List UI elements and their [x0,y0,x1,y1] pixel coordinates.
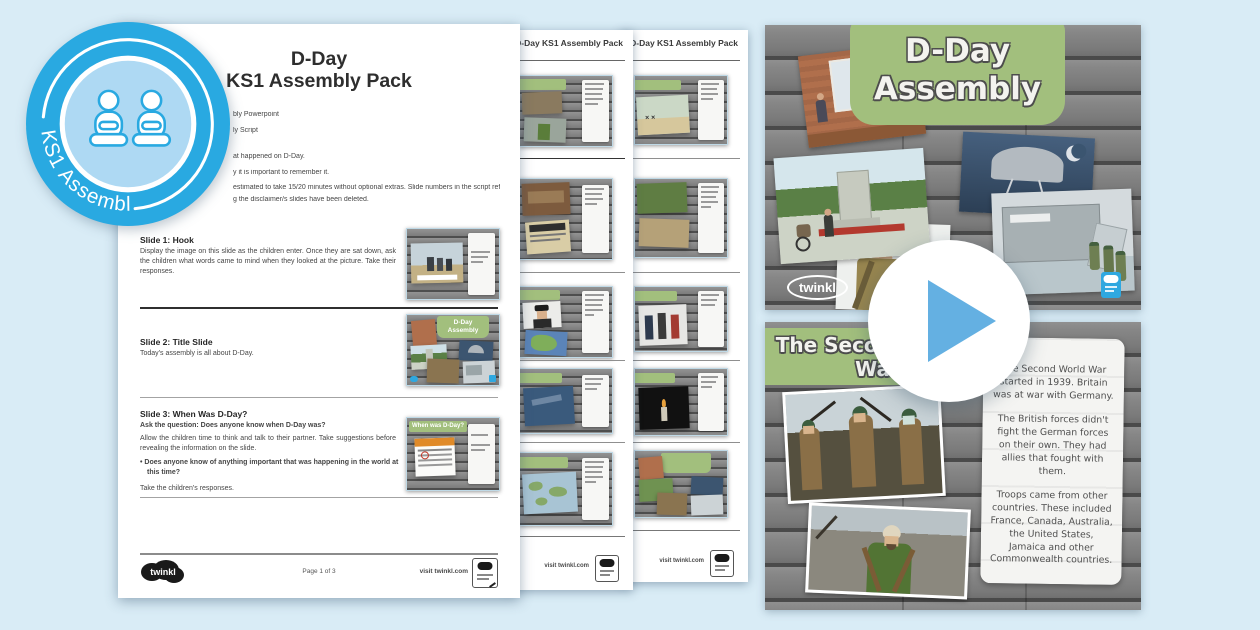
twinkl-mini-logo [410,376,418,382]
coat [533,319,551,329]
paragraph-3: Troops came from other countries. These … [990,490,1114,568]
divider [505,360,625,361]
mini-title-line-2: Assembly [437,327,489,335]
x-marks: × × [645,114,655,122]
slide-3-thumbnail: When was D-Day? [406,417,500,491]
parachute-canopy [991,145,1065,183]
section-body: Allow the children time to think and tal… [140,434,396,454]
slide-title-bar [634,80,681,90]
slide-thumbnail [634,368,728,436]
face [903,415,915,425]
preview-stage: D-Day KS1 Assembly Pack × × [0,0,1260,630]
building-photo [638,456,664,480]
twinkl-cloud-icon [1104,275,1119,283]
moon-shadow [1071,143,1087,159]
twinkl-cloud-icon [715,554,730,562]
soldiers-photo [657,492,688,515]
parachute [468,345,484,354]
soldier [899,418,924,485]
figure [437,258,443,271]
badge-line [477,578,489,580]
beach-photo [639,218,690,248]
slide-title-line-2: Assembly [850,69,1065,109]
soldier [1103,245,1114,273]
soldier [849,415,877,488]
badge-line [715,565,729,567]
slide-thumbnail [519,368,613,434]
parachute-photo [458,340,493,362]
header-rule [620,60,740,61]
script-card [582,185,609,253]
sikh-soldier-photo [805,503,971,600]
landing-craft-photo [691,494,724,515]
twinkl-logo-white: twinkl [787,275,848,300]
section-body: Today's assembly is all about D-Day. [140,349,396,359]
figure [645,315,654,339]
slide-1-thumbnail [406,228,500,300]
section-bullet: • Does anyone know of anything important… [140,458,403,478]
ks1-assembly-badge: KS1 Assembly [26,22,230,226]
sea-photo [523,386,575,427]
divider [620,158,740,159]
mini-title-box [661,453,711,473]
section-heading: Slide 2: Title Slide [140,337,213,347]
mini-title-line-1: D-Day [437,319,489,327]
twinkl-quality-badge [1101,272,1121,298]
line [530,238,560,242]
paragraph-2: The British forces didn't fight the Germ… [991,414,1115,480]
footer-site: visit twinkl.com [544,563,589,569]
script-card [582,458,609,520]
candle-photo [638,386,689,430]
figure [671,314,680,338]
script-card [698,183,724,253]
badge-line [600,574,610,576]
face [853,413,865,423]
island [549,486,567,497]
landmass [531,334,558,351]
section-closing: Take the children's responses. [140,484,396,494]
divider [620,360,740,361]
slide-thumbnail [519,286,613,358]
slide-thumbnail [634,178,728,258]
face [803,426,814,435]
script-card [698,291,724,347]
divider [505,158,625,159]
parachute-photo [691,476,724,496]
island [528,481,542,491]
page-header: D-Day KS1 Assembly Pack [515,38,623,48]
quality-badge [595,555,619,582]
script-card [582,291,609,353]
slide-title-bar [519,290,560,300]
beach-map-photo: × × [636,95,690,136]
field-photo [636,182,687,214]
woman-figure [815,100,828,123]
badge-line [1105,286,1117,288]
play-button[interactable] [868,240,1030,402]
branch [815,515,837,539]
twinkl-cloud-icon [600,559,615,567]
document-page-2: D-Day KS1 Assembly Pack [505,30,633,590]
islands-map-photo [522,472,578,515]
footer-rule [505,536,625,537]
headline [529,223,565,232]
slide-thumbnail-ww2 [519,75,613,147]
slide-thumbnail: × × [634,75,728,145]
slide-thumbnail [634,286,728,352]
calendar-photo [414,437,455,476]
wave [531,394,562,406]
calendar-header [414,437,454,446]
divider [620,272,740,273]
divider [505,272,625,273]
title-box: D-Day Assembly [850,25,1065,125]
soldiers-photo [427,358,460,383]
slide-title-bar [519,457,568,468]
prompt-card [468,233,495,295]
twinkl-logo-text: twinkl [787,275,848,300]
prompt-card [468,424,495,484]
section-divider [140,497,498,498]
section-heading: Slide 1: Hook [140,235,194,245]
memorial-pillar [837,170,873,224]
divider [505,442,625,443]
divider [620,442,740,443]
section-divider [140,307,498,309]
figure [538,124,551,140]
building-photo [411,319,437,347]
note-fragment: estimated to take 15/20 minutes without … [233,184,500,191]
section-question: Ask the question: Does anyone know when … [140,421,396,431]
churchill-photo [522,301,561,329]
footer-rule [140,553,498,555]
script-card [698,80,724,140]
resource-list-fragment: ly Script [233,127,500,134]
veteran-figure [824,214,835,237]
aim-fragment: at happened on D-Day. [233,153,500,160]
beach-hook-photo [411,243,464,284]
figure [658,313,667,339]
candle [661,407,667,421]
header-rule [505,60,625,61]
note-fragment: g the disclaimer/s slides have been dele… [233,196,500,203]
section-body: Display the image on this slide as the c… [140,247,396,277]
figure [446,259,452,271]
footer-site: visit twinkl.com [420,568,468,575]
soldier [799,427,822,490]
calendar-row [418,463,452,466]
figure [427,257,434,271]
newspaper-photo [525,220,571,255]
badge-line [477,574,493,576]
play-icon [868,240,1030,402]
island [535,497,547,506]
hull-marking [1010,213,1050,222]
section-heading: Slide 3: When Was D-Day? [140,409,247,419]
resource-list-fragment: bly Powerpoint [233,111,500,118]
slide-thumbnail [519,178,613,260]
slide-title-bar [634,291,677,301]
twinkl-cloud-icon [478,562,493,570]
aim-fragment: y it is important to remember it. [233,169,500,176]
mini-banner: When was D-Day? [409,421,467,432]
slide-thumbnail-title-collage [634,450,728,518]
script-card [582,375,609,427]
footer-rule [620,530,740,531]
twinkl-mini-badge [489,375,496,382]
footer-site: visit twinkl.com [659,558,704,564]
room-photo [521,182,570,216]
script-card [582,80,609,142]
badge-line [600,570,614,572]
slide-title-bar [634,373,675,383]
soldier-photo [524,117,567,142]
page-header: D-Day KS1 Assembly Pack [630,38,738,48]
line [530,233,566,238]
flame [662,399,666,407]
uniforms-photo [638,304,687,346]
soldiers-photo [522,91,563,114]
section-divider [140,397,498,398]
badge-line [1105,290,1114,292]
slide-thumbnail [519,452,613,526]
slide-title-line-1: D-Day [850,33,1065,69]
ship [466,365,482,376]
slide-title-bar [519,373,562,383]
room-detail [528,190,564,203]
document-page-3: D-Day KS1 Assembly Pack × × [620,30,748,582]
wheel [795,236,811,252]
slide-2-thumbnail: D-Day Assembly [406,314,500,386]
quality-badge [710,550,734,577]
slide-title-bar [519,79,566,90]
europe-map-photo [524,330,567,356]
quality-badge [472,558,498,588]
badge-line [715,569,725,571]
script-card [698,373,724,431]
soldier [1089,242,1100,270]
mini-title-box: D-Day Assembly [437,316,489,338]
caption-strip [417,275,457,281]
pencil-icon [489,582,496,588]
